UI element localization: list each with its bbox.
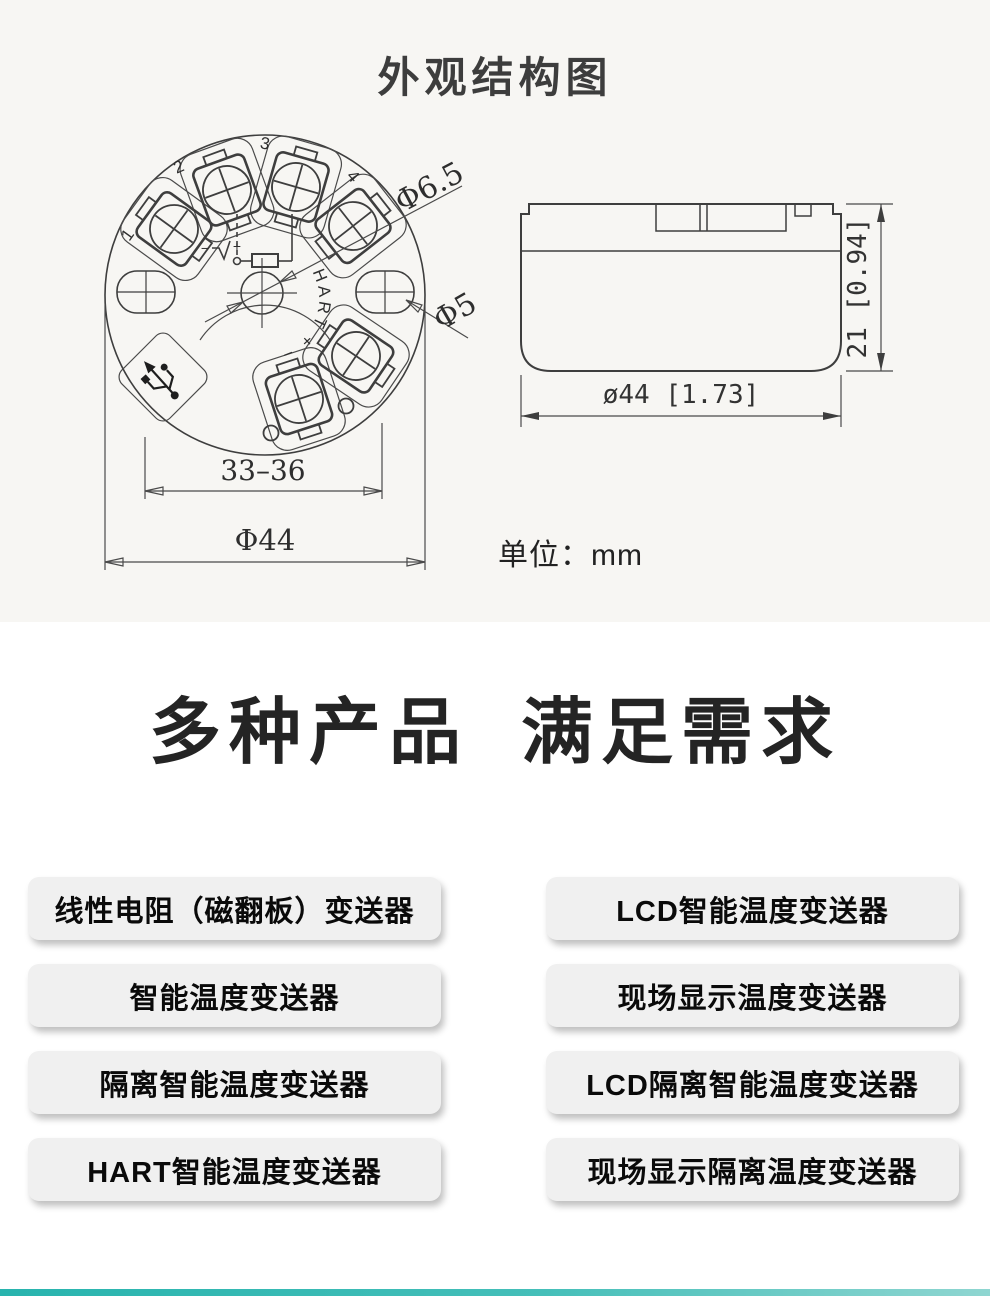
front-view-drawing: 1 2 3 4 HART + − [105,132,483,570]
heading-left: 多种产品 [149,692,469,775]
leader-phi-5: Φ5 [406,286,483,338]
product-list-right: LCD智能温度变送器 现场显示温度变送器 LCD隔离智能温度变送器 现场显示隔离… [546,877,959,1201]
product-button-field-display-temp[interactable]: 现场显示温度变送器 [546,964,959,1027]
section-title: 外观结构图 [0,44,990,105]
schematic-minus-label: − [201,240,209,256]
schematic-plus-label: + [233,238,241,254]
product-button-field-display-isolated-temp[interactable]: 现场显示隔离温度变送器 [546,1138,959,1201]
product-detail-page: 外观结构图 [0,0,990,1296]
heading-right: 满足需求 [521,692,841,775]
products-heading: 多种产品 满足需求 [0,692,990,775]
terminal-number-2: 2 [171,156,187,177]
dim-span-label: 33–36 [220,454,305,487]
usb-icon [133,351,188,408]
mounting-hole-2 [264,426,279,441]
dimension-diameter: Φ44 [105,300,425,570]
product-button-isolated-smart-temp[interactable]: 隔离智能温度变送器 [28,1051,441,1114]
side-view-drawing: ø44 [1.73] 21 [0.94] [521,204,893,427]
product-button-smart-temp[interactable]: 智能温度变送器 [28,964,441,1027]
structure-diagram-section: 外观结构图 [0,0,990,622]
terminal-number-3: 3 [259,133,272,153]
center-hole [227,258,297,328]
product-button-lcd-smart-temp[interactable]: LCD智能温度变送器 [546,877,959,940]
dim-phi-5: Φ5 [428,286,483,338]
product-button-hart-smart-temp[interactable]: HART智能温度变送器 [28,1138,441,1201]
side-dim-height-label: 21 [0.94] [843,218,873,359]
side-dim-width-label: ø44 [1.73] [603,380,760,410]
side-pad-right [356,271,414,313]
product-button-linear-resistance[interactable]: 线性电阻（磁翻板）变送器 [28,877,441,940]
dim-diameter-label: Φ44 [235,523,296,557]
technical-drawing: 1 2 3 4 HART + − [80,122,910,584]
dim-phi-6-5: Φ6.5 [389,155,469,220]
side-pad-left [117,271,175,313]
terminal-screw-2 [188,144,265,236]
bottom-accent-bar [0,1289,990,1296]
unit-label: 单位：mm [498,530,643,574]
product-button-lcd-isolated-smart-temp[interactable]: LCD隔离智能温度变送器 [546,1051,959,1114]
product-list-left: 线性电阻（磁翻板）变送器 智能温度变送器 隔离智能温度变送器 HART智能温度变… [28,877,441,1201]
side-dimension-width: ø44 [1.73] [521,375,841,427]
side-dimension-height: 21 [0.94] [843,204,893,371]
terminal-screw-3 [259,142,332,232]
terminal-number-1: 1 [117,225,138,244]
